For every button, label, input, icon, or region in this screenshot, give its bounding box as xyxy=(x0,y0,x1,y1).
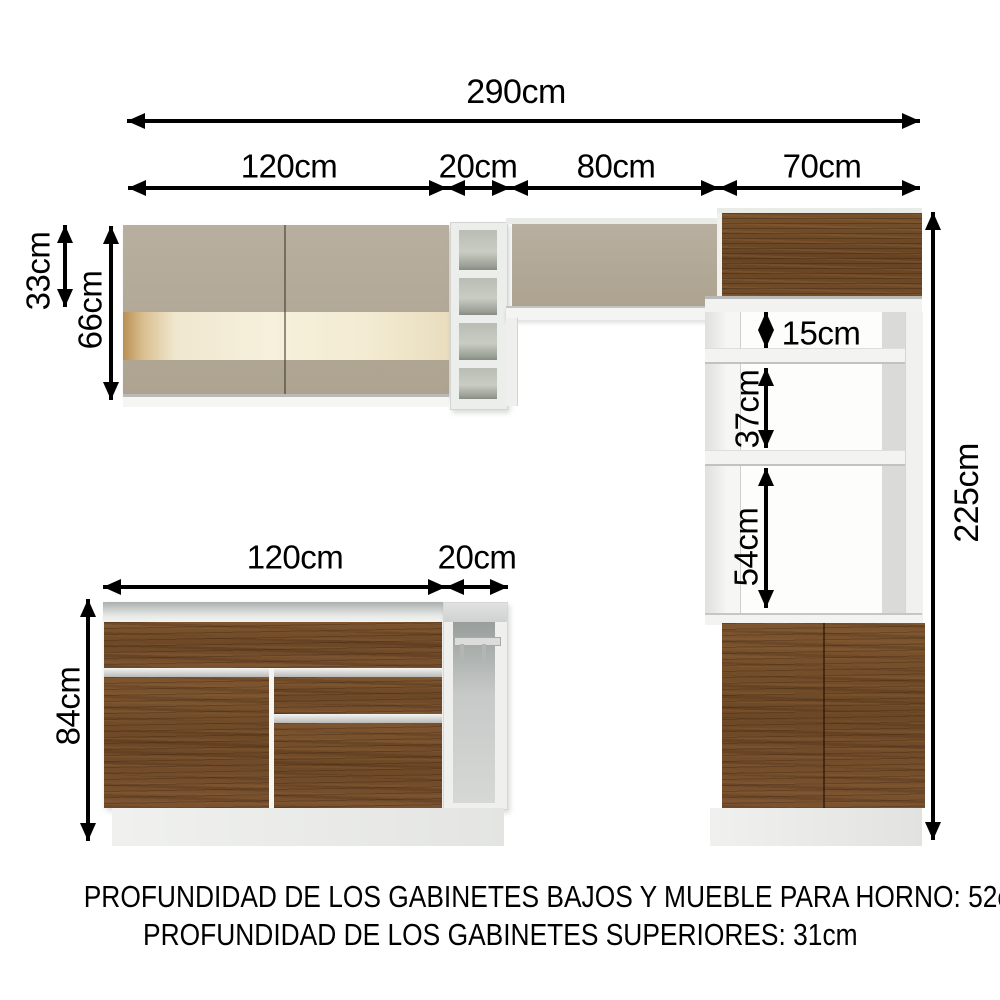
base-open-unit-top xyxy=(444,603,507,622)
base-cabinet xyxy=(103,602,443,808)
footer-depth-line-1-text: PROFUNDIDAD DE LOS GABINETES BAJOS Y MUE… xyxy=(84,881,1000,912)
base-right-door xyxy=(274,723,442,808)
hook-1 xyxy=(460,644,464,661)
base-left-door xyxy=(104,677,269,808)
cubby-4 xyxy=(459,368,497,399)
base-plinth xyxy=(112,808,504,846)
base-open-top xyxy=(103,602,443,622)
dim-label-total-width: 290cm xyxy=(466,75,566,109)
tall-top-door xyxy=(722,213,922,296)
kitchen-dimension-diagram: 290cm 120cm 20cm 80cm 70cm 33cm 66cm xyxy=(0,0,1000,1000)
glass-strip xyxy=(123,312,449,360)
dim-arrow-total-height xyxy=(931,212,935,840)
dim-label-66: 66cm xyxy=(74,271,107,350)
cubby-1 xyxy=(459,230,497,270)
dim-arrow-84 xyxy=(86,599,90,841)
bridge-cabinet-bottom-band xyxy=(506,306,719,320)
dim-arrow-15 xyxy=(764,312,768,348)
dim-arrow-54 xyxy=(764,468,768,608)
hook-2 xyxy=(482,644,486,661)
base-handle-right-bottom xyxy=(274,714,442,723)
dim-arrow-33 xyxy=(63,225,67,307)
dim-arrow-66 xyxy=(109,226,113,400)
dim-arrow-base-120 xyxy=(103,585,446,589)
upper-wall-cabinet xyxy=(123,225,449,394)
dim-label-top-70: 70cm xyxy=(783,150,862,183)
dim-label-84: 84cm xyxy=(52,667,85,746)
dim-label-base-120: 120cm xyxy=(247,541,344,574)
base-handle-left xyxy=(104,668,269,677)
dim-label-base-20: 20cm xyxy=(438,541,517,574)
dim-label-15: 15cm xyxy=(782,317,861,350)
door-divider xyxy=(284,225,286,394)
dim-arrow-top-80 xyxy=(510,186,719,190)
footer-depth-line-2: PROFUNDIDAD DE LOS GABINETES SUPERIORES:… xyxy=(0,919,1000,950)
base-right-drawer xyxy=(274,677,442,714)
dim-label-top-120: 120cm xyxy=(241,150,338,183)
base-handle-right-top xyxy=(274,668,442,677)
dim-label-37: 37cm xyxy=(731,370,764,449)
cubby-3 xyxy=(459,323,497,360)
cubby-2 xyxy=(459,278,497,315)
base-open-unit xyxy=(443,602,508,810)
upper-open-shelf-unit xyxy=(450,222,508,410)
dim-label-top-20: 20cm xyxy=(439,150,518,183)
dim-arrow-total-width xyxy=(127,119,920,123)
footer-depth-line-1: PROFUNDIDAD DE LOS GABINETES BAJOS Y MUE… xyxy=(0,881,1000,912)
dim-arrow-top-120 xyxy=(128,186,447,190)
dim-arrow-top-70 xyxy=(719,186,920,190)
upper-wall-cabinet-bottom-edge xyxy=(123,394,449,407)
tall-bottom-door-divider xyxy=(823,623,825,808)
dim-label-54: 54cm xyxy=(730,508,763,587)
bridge-cabinet-door xyxy=(512,224,717,306)
dim-label-top-80: 80cm xyxy=(577,150,656,183)
dim-arrow-base-20 xyxy=(446,585,508,589)
dim-label-33: 33cm xyxy=(22,232,55,311)
base-front-band xyxy=(104,622,442,668)
tall-bottom-doors xyxy=(722,623,925,808)
bridge-cabinet-side-leg xyxy=(506,318,518,406)
dim-arrow-top-20 xyxy=(447,186,510,190)
tall-plinth xyxy=(710,808,922,846)
tall-side-panel-right xyxy=(905,312,923,623)
tall-shelf-2 xyxy=(705,450,905,466)
dim-label-total-height: 225cm xyxy=(950,443,984,543)
footer-depth-line-2-text: PROFUNDIDAD DE LOS GABINETES SUPERIORES:… xyxy=(143,919,858,950)
